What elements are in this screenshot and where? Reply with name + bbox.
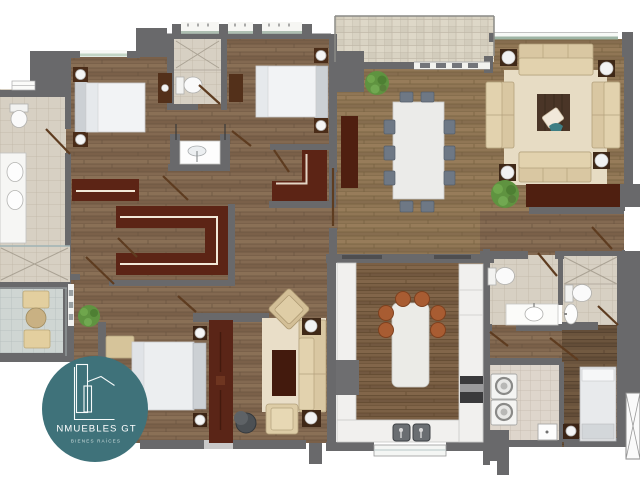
- svg-text:BIENES RAÍCES: BIENES RAÍCES: [71, 438, 121, 444]
- svg-text:NMUEBLES GT: NMUEBLES GT: [56, 424, 136, 435]
